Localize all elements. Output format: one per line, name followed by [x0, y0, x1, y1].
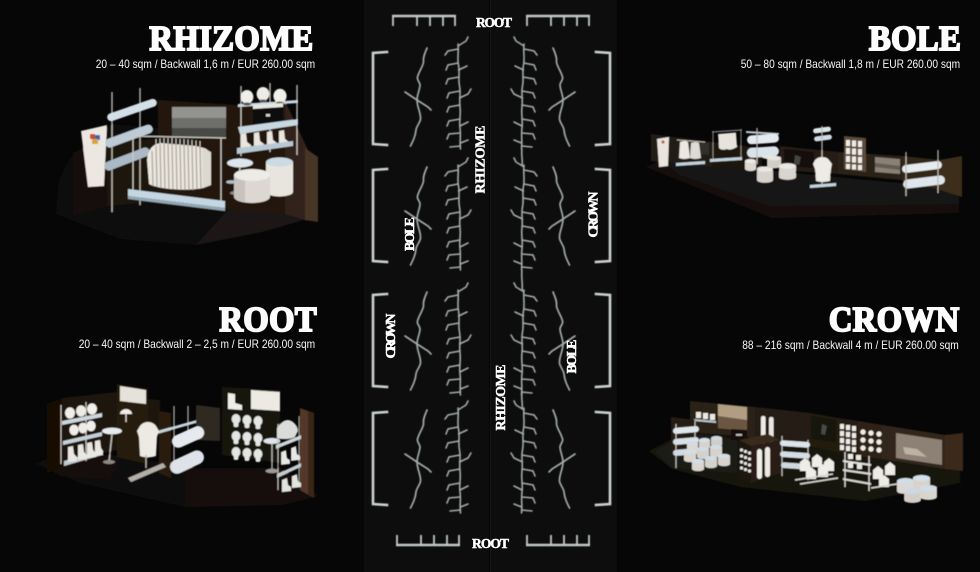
svg-text:RHIZOME: RHIZOME	[474, 126, 489, 194]
svg-text:RHIZOME: RHIZOME	[494, 365, 509, 431]
svg-text:ROOT: ROOT	[472, 536, 509, 551]
svg-text:CROWN: CROWN	[587, 192, 602, 238]
svg-text:ROOT: ROOT	[476, 15, 512, 30]
svg-text:CROWN: CROWN	[384, 314, 399, 359]
svg-text:BOLE: BOLE	[565, 340, 580, 374]
svg-text:BOLE: BOLE	[403, 217, 418, 251]
